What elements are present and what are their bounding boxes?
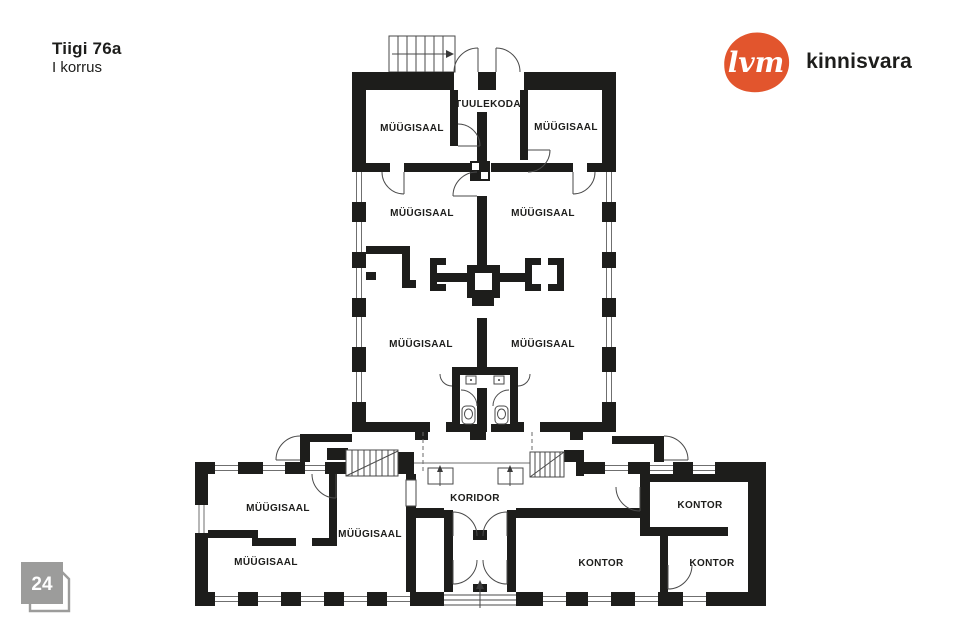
room-label: KONTOR	[689, 558, 735, 569]
room-label: MÜÜGISAAL	[234, 555, 298, 568]
room-label: TUULEKODA	[455, 99, 521, 110]
floorplan-page: Tiigi 76a I korrus lvm kinnisvara 24	[0, 0, 960, 640]
room-label: MÜÜGISAAL	[511, 337, 575, 350]
room-label: MÜÜGISAAL	[390, 206, 454, 219]
room-label: MÜÜGISAAL	[380, 121, 444, 134]
room-label: KORIDOR	[450, 493, 500, 504]
floorplan-drawing: TUULEKODAMÜÜGISAALMÜÜGISAALMÜÜGISAALMÜÜG…	[0, 0, 960, 640]
room-label: MÜÜGISAAL	[534, 120, 598, 133]
room-label: MÜÜGISAAL	[246, 501, 310, 514]
room-label: KONTOR	[677, 500, 723, 511]
stairs-top	[389, 36, 455, 72]
room-label: MÜÜGISAAL	[338, 527, 402, 540]
room-label: KONTOR	[578, 558, 624, 569]
stairs-wing-right	[530, 452, 564, 477]
room-label: MÜÜGISAAL	[511, 206, 575, 219]
wc-core	[440, 367, 530, 440]
room-label: MÜÜGISAAL	[389, 337, 453, 350]
